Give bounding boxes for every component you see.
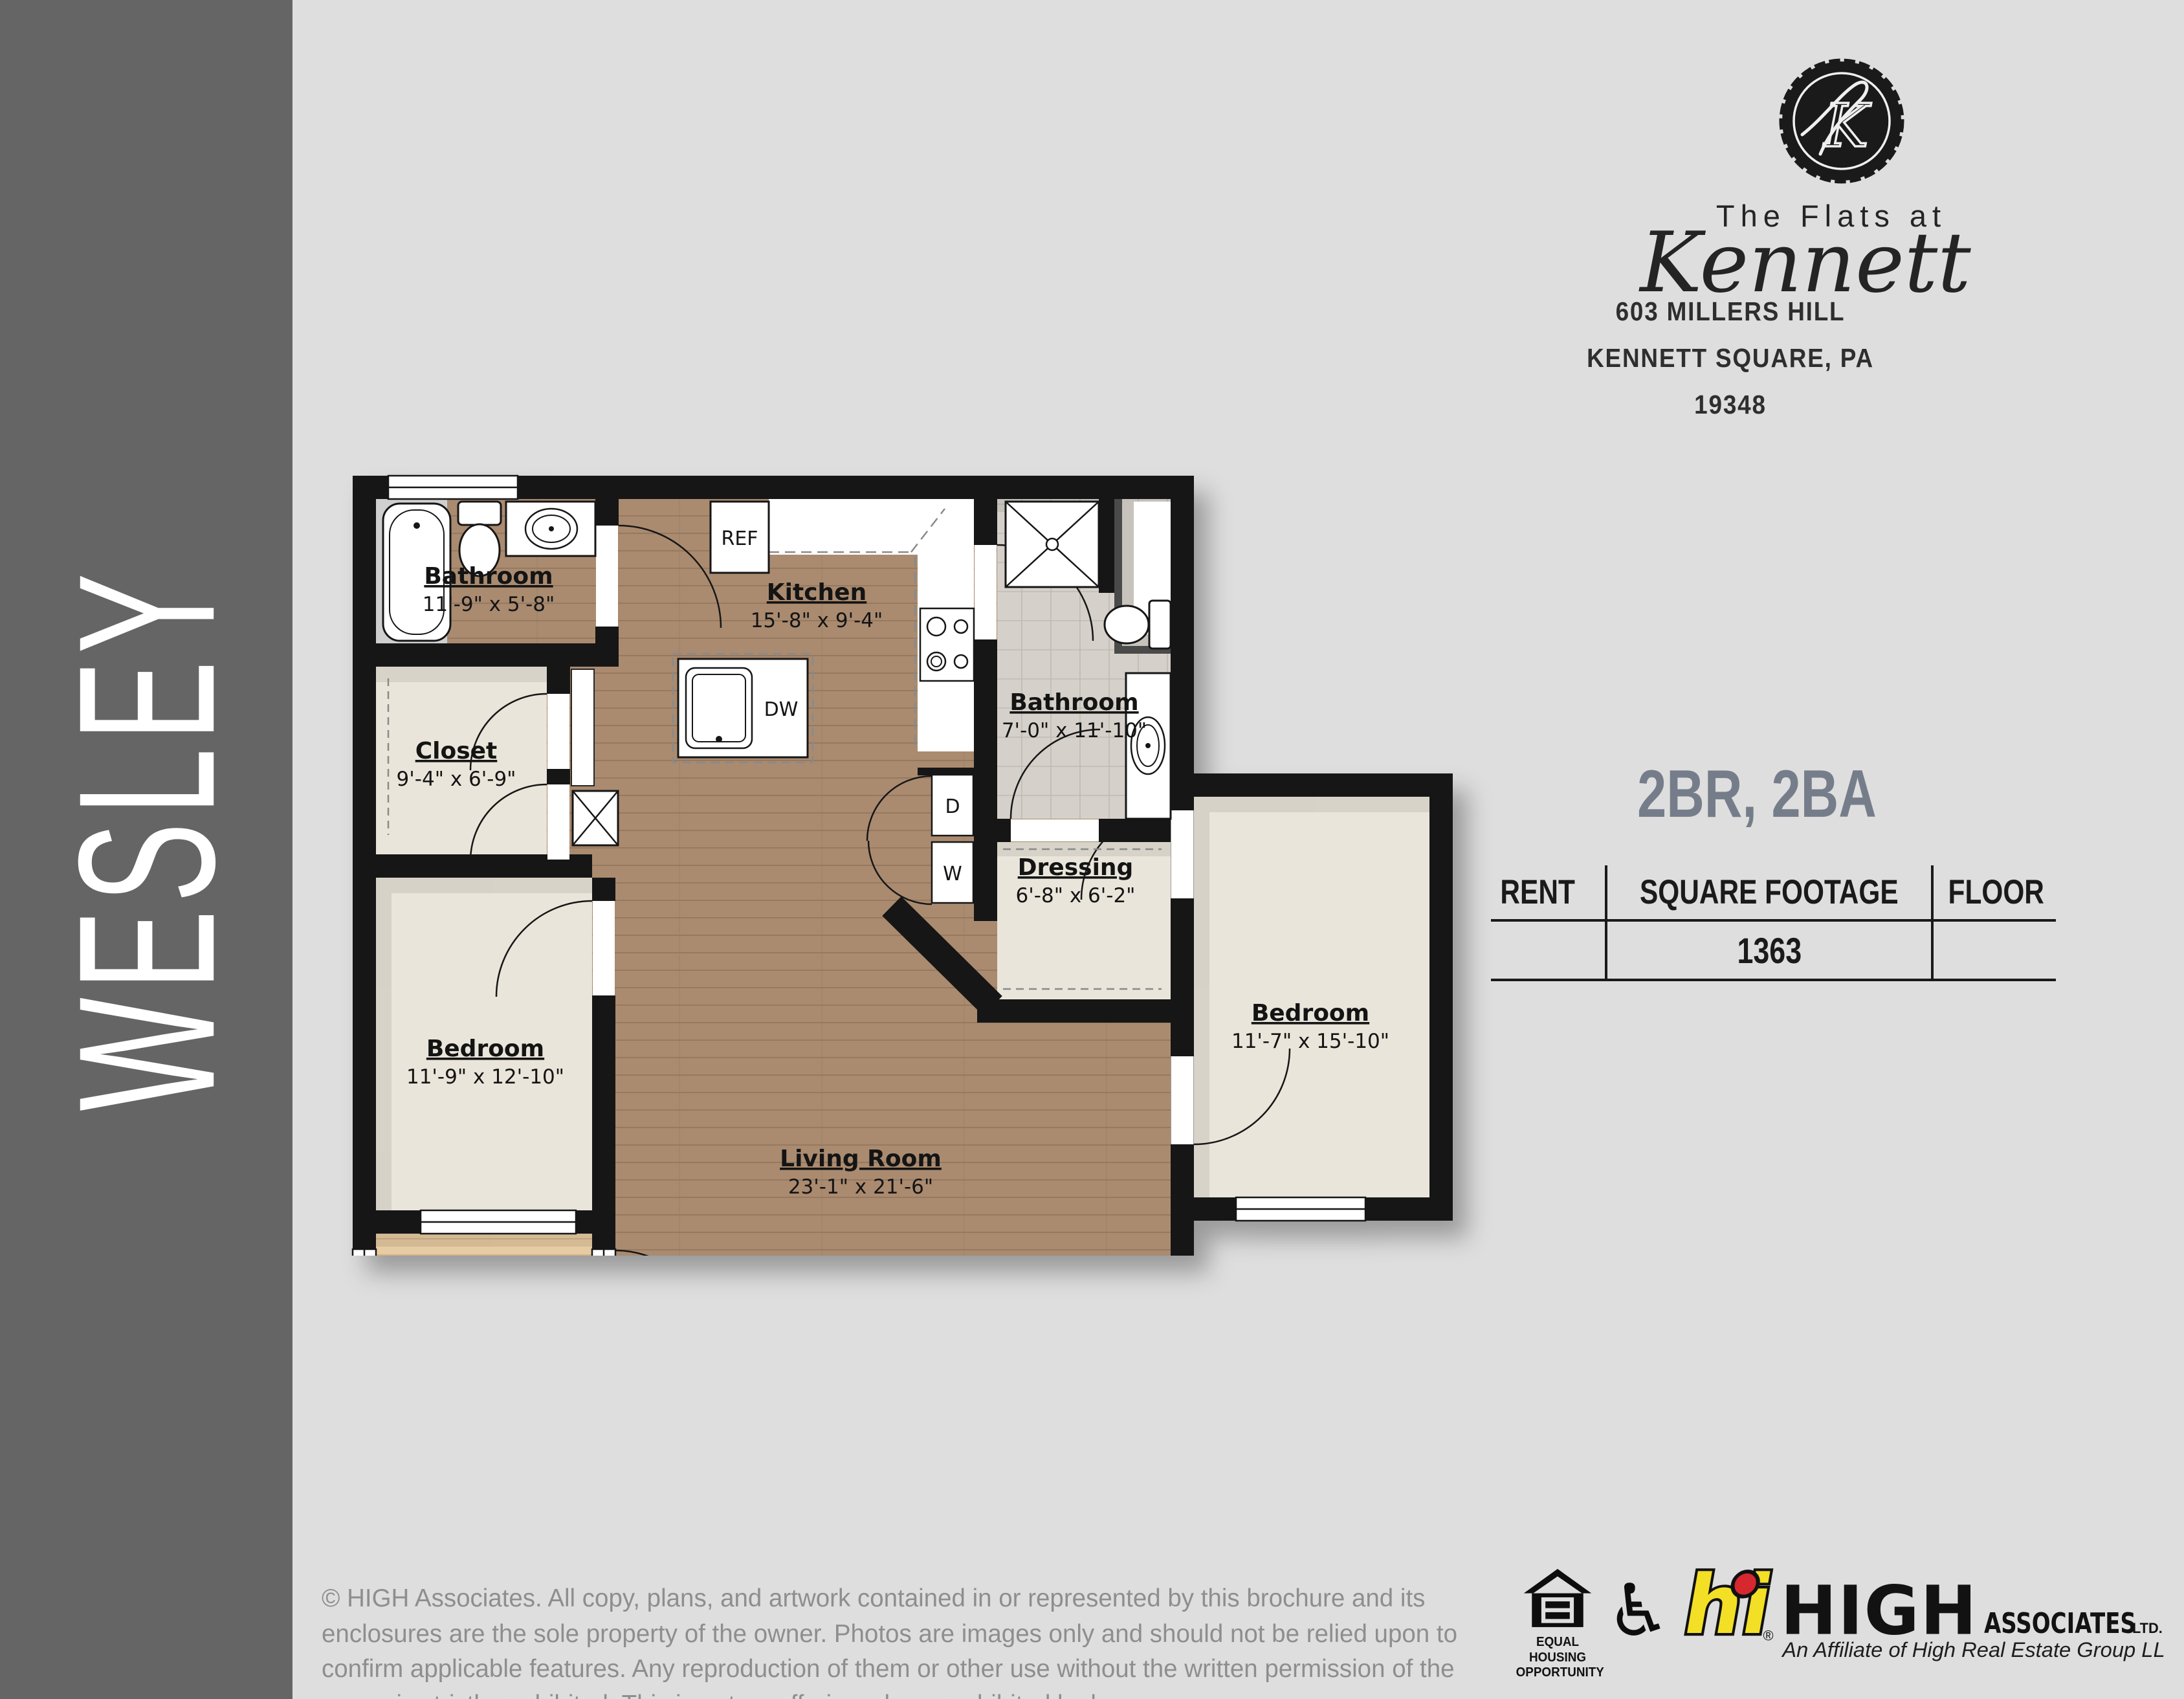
room-dims: 6'-8" x 6'-2" bbox=[1016, 884, 1136, 907]
flats-at-kennett-logo-icon: K bbox=[1778, 57, 1906, 185]
room-dims: 11'-7" x 15'-10" bbox=[1231, 1030, 1389, 1053]
spec-header-rent: RENT bbox=[1491, 865, 1605, 922]
high-tagline: An Affiliate of High Real Estate Group L… bbox=[1781, 1638, 2166, 1661]
associates-wordmark: ASSOCIATES bbox=[1984, 1608, 2136, 1640]
spec-table: RENT SQUARE FOOTAGE FLOOR 1363 bbox=[1491, 865, 2056, 981]
room-dims: 9'-4" x 6'-9" bbox=[397, 768, 516, 791]
address-line-2: KENNETT SQUARE, PA 19348 bbox=[1556, 335, 1905, 428]
room-dims: 7'-0" x 11'-10" bbox=[1002, 719, 1147, 742]
room-label: Closet bbox=[415, 738, 498, 764]
spec-value-floor bbox=[1934, 922, 2056, 981]
dryer-label: D bbox=[945, 795, 960, 818]
floorplan-name: WESLEY bbox=[34, 566, 258, 1111]
room-label: Kitchen bbox=[767, 579, 866, 606]
washer-label: W bbox=[943, 863, 962, 885]
room-label: Living Room bbox=[780, 1146, 942, 1172]
room-label: Bedroom bbox=[426, 1036, 544, 1062]
closet-shelves bbox=[571, 669, 594, 786]
room-label: Bathroom bbox=[424, 563, 553, 590]
equal-housing-icon bbox=[1523, 1569, 1593, 1628]
room-label: Dressing bbox=[1018, 854, 1134, 881]
spec-header-floor: FLOOR bbox=[1934, 865, 2056, 922]
eho-label-line2: OPPORTUNITY bbox=[1516, 1665, 1600, 1680]
high-associates-logo: hi ® HIGH ASSOCIATES LTD. An Affiliate o… bbox=[1677, 1563, 2166, 1661]
eho-label-line1: EQUAL HOUSING bbox=[1516, 1634, 1600, 1665]
unit-type-heading: 2BR, 2BA bbox=[1605, 756, 1908, 833]
toilet-bowl-2 bbox=[1105, 606, 1149, 643]
accessibility-icon: ♿ bbox=[1606, 1569, 1671, 1653]
spec-value-square-footage: 1363 bbox=[1605, 922, 1934, 981]
room-dims: 11'-9" x 12'-10" bbox=[406, 1065, 564, 1089]
room-label: Bathroom bbox=[1009, 689, 1138, 716]
room-dims: 11'-9" x 5'-8" bbox=[423, 593, 555, 616]
floor-plan-drawing: Bathroom 11'-9" x 5'-8" Kitchen 15'-8" x… bbox=[324, 447, 1456, 1256]
equal-housing-logo: EQUAL HOUSING OPPORTUNITY bbox=[1512, 1569, 1603, 1680]
toilet-tank-2 bbox=[1149, 601, 1171, 649]
logo-monogram: K bbox=[1823, 91, 1872, 161]
room-dims: 15'-8" x 9'-4" bbox=[751, 609, 883, 632]
floorplan-name-wrap: WESLEY bbox=[0, 0, 292, 1699]
copyright-text: © HIGH Associates. All copy, plans, and … bbox=[322, 1581, 1509, 1699]
dishwasher-label: DW bbox=[764, 698, 799, 721]
registered-mark: ® bbox=[1763, 1628, 1774, 1644]
brochure-page: WESLEY K The Flats at Kennett 603 MILLER… bbox=[0, 0, 2184, 1699]
room-dims: 23'-1" x 21'-6" bbox=[788, 1175, 933, 1199]
spec-value-rent bbox=[1491, 922, 1605, 981]
room-label: Bedroom bbox=[1252, 1000, 1369, 1027]
stove bbox=[920, 608, 974, 681]
address-line-1: 603 MILLERS HILL bbox=[1556, 289, 1905, 335]
spec-header-square-footage: SQUARE FOOTAGE bbox=[1605, 865, 1934, 922]
brand-address: 603 MILLERS HILL KENNETT SQUARE, PA 1934… bbox=[1536, 289, 1925, 428]
refrigerator-label: REF bbox=[721, 527, 758, 550]
toilet-tank bbox=[458, 502, 501, 525]
ltd-wordmark: LTD. bbox=[2132, 1620, 2163, 1636]
